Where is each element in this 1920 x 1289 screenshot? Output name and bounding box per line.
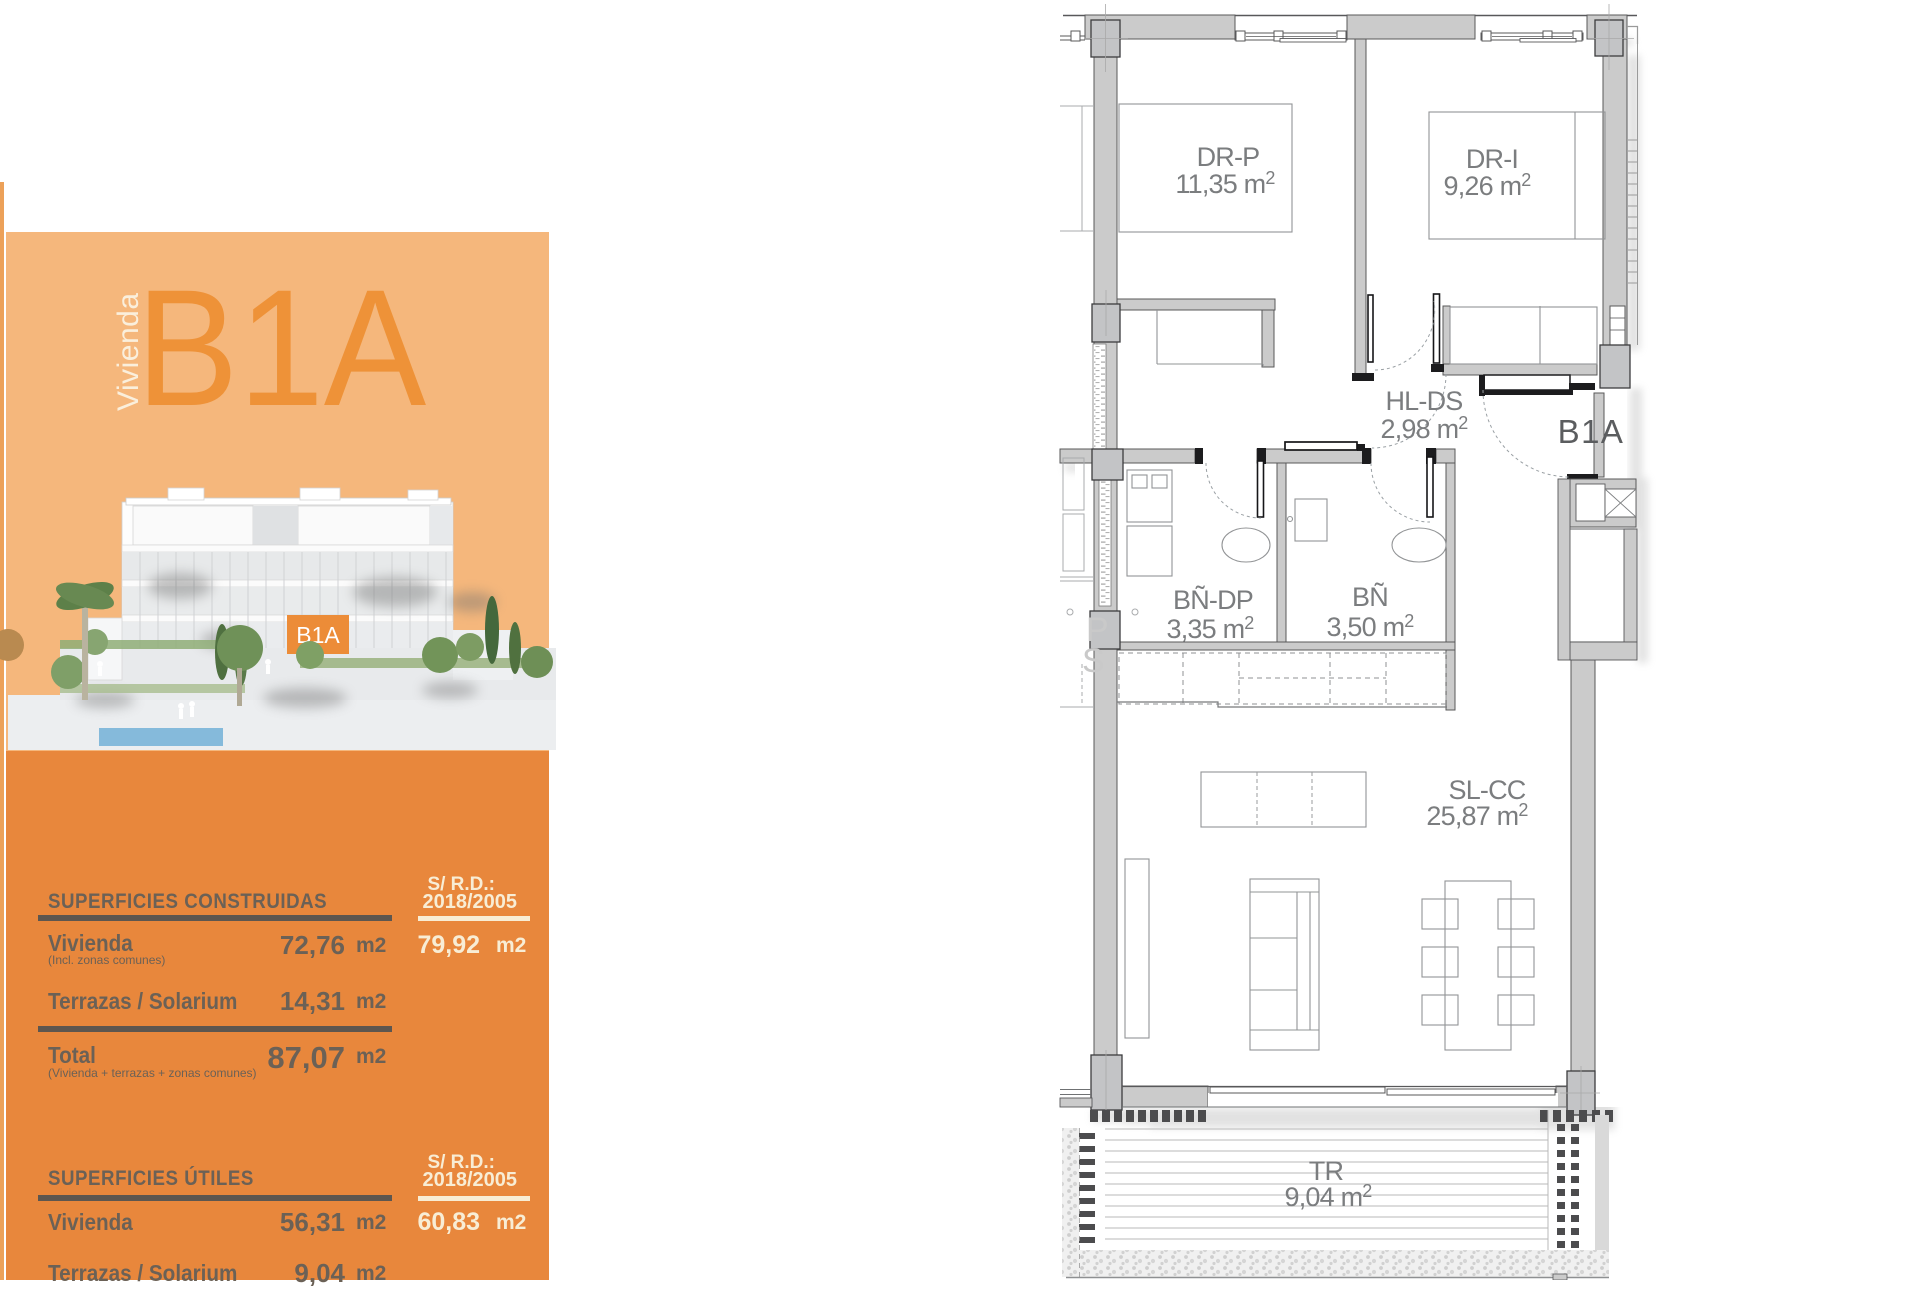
svg-text:DR-I: DR-I	[1466, 144, 1518, 174]
svg-text:HL-DS: HL-DS	[1385, 386, 1462, 416]
svg-text:S: S	[1082, 642, 1105, 680]
svg-text:9,26 m2: 9,26 m2	[1444, 170, 1532, 201]
svg-text:DR-P: DR-P	[1197, 142, 1260, 172]
svg-text:25,87 m2: 25,87 m2	[1426, 800, 1528, 831]
svg-text:B1A: B1A	[1558, 413, 1625, 450]
svg-text:BÑ-DP: BÑ-DP	[1173, 584, 1253, 615]
svg-text:2,98 m2: 2,98 m2	[1381, 413, 1469, 444]
svg-text:3,50 m2: 3,50 m2	[1327, 611, 1415, 642]
svg-text:9,04 m2: 9,04 m2	[1285, 1181, 1373, 1212]
svg-text:11,35 m2: 11,35 m2	[1175, 168, 1275, 199]
svg-text:3,35 m2: 3,35 m2	[1167, 613, 1255, 644]
svg-text:BÑ: BÑ	[1352, 581, 1388, 612]
